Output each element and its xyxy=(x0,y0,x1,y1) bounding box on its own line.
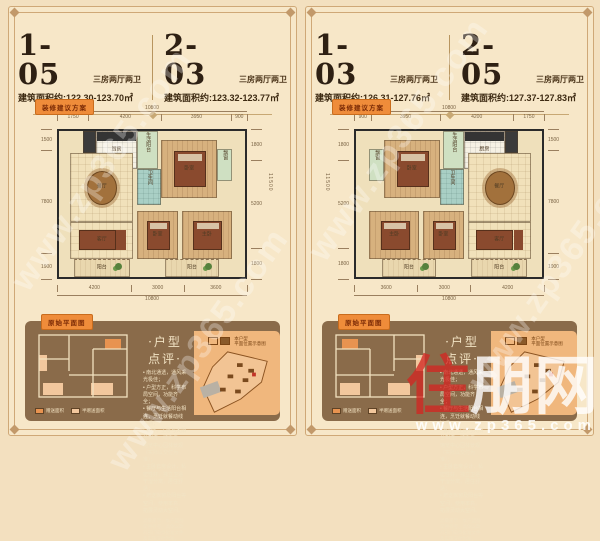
unit-info: 2-03 三房两厅两卫 建筑面积约:123.32-123.77㎡ xyxy=(155,31,296,104)
review-bullet: 赠送飘窗及阳台等空间，使用率高，拓展灵动大空间。 xyxy=(440,493,484,515)
room-label: 阳台 xyxy=(383,265,435,271)
room: 客厅 xyxy=(468,222,531,260)
legend-item: 赠送面积 xyxy=(35,408,64,414)
dimension-label: 7800 xyxy=(548,150,559,253)
original-plan-outline: 赠送面积半赠送面积 xyxy=(332,331,436,415)
site-legend: 本户型 平面位置示意图 xyxy=(495,336,573,347)
dimension-label: 3950 xyxy=(161,114,230,121)
legend-swatch xyxy=(35,408,44,414)
review-bullets: 南北通透，通风采光极佳；户型方正，科学布局空间，功能齐全；餐厅与生活阳台相连，烹… xyxy=(440,370,484,515)
floor-plan: 10800 900395042001750 厨房生活阳台卧室飘窗餐厅卫生间客厅卧… xyxy=(318,103,581,321)
room-label: 客厅 xyxy=(469,238,530,244)
dimension-column: 150078001900 xyxy=(548,129,559,280)
site-legend-text: 本户型 平面位置示意图 xyxy=(531,336,563,347)
dimension-total: 10800 xyxy=(354,295,544,302)
room: 卧室 xyxy=(384,140,440,198)
room-label: 生活阳台 xyxy=(451,132,457,168)
dimension-label: 4200 xyxy=(470,285,544,292)
renovation-plan-tag: 装修建议方案 xyxy=(332,99,391,115)
room-label: 餐厅 xyxy=(71,184,132,190)
room: 主卧 xyxy=(182,211,232,259)
room-label: 卧室 xyxy=(162,166,216,172)
corner-ornament-icon xyxy=(10,8,20,18)
review-title: ·户型点评· xyxy=(143,333,187,367)
unit-number: 1-03 xyxy=(315,31,386,89)
dimension-column: 180052001800 xyxy=(251,129,262,280)
unit-type: 三房两厅两卫 xyxy=(536,74,584,89)
dimension-label: 3000 xyxy=(417,285,470,292)
review-bullet: 主卧套房设计，私密性好，独立卫浴干湿分离，居住舒适； xyxy=(143,464,187,493)
room: 主卧 xyxy=(369,211,419,259)
unit-info: 1-05 三房两厅两卫 建筑面积约:122.30-123.70㎡ xyxy=(9,31,150,104)
room-label: 卫生间 xyxy=(146,170,152,205)
dimension-total: 10800 xyxy=(57,295,247,302)
room: 餐厅 xyxy=(70,153,133,222)
unit-info: 2-05 三房两厅两卫 建筑面积约:127.37-127.83㎡ xyxy=(452,31,593,104)
dimension-label: 900 xyxy=(231,114,248,121)
unit-number: 2-05 xyxy=(461,31,532,89)
room-label: 阳台 xyxy=(75,265,129,271)
outline-plan-drawing xyxy=(35,331,131,405)
corner-ornament-icon xyxy=(583,425,593,435)
legend-item: 半赠送面积 xyxy=(368,408,402,414)
room-label: 厨房 xyxy=(97,147,136,153)
dimension-label: 4200 xyxy=(440,114,513,121)
corner-ornament-icon xyxy=(307,425,317,435)
dimension-total: 11500 xyxy=(267,173,273,192)
room: 客厅 xyxy=(70,222,133,260)
unit-number: 2-03 xyxy=(164,31,235,89)
room: 阳台 xyxy=(74,259,130,277)
plan-legend: 赠送面积半赠送面积 xyxy=(332,408,436,414)
site-legend: 本户型 平面位置示意图 xyxy=(198,336,276,347)
dimension-row: 360030004200 xyxy=(354,285,545,292)
dimension-label: 4200 xyxy=(57,285,131,292)
review-bullet: 餐厅与生活阳台相连，烹饪就餐动线流畅； xyxy=(143,406,187,428)
site-plan: 本户型 平面位置示意图 xyxy=(491,331,577,415)
review-bullet: 户型方正，科学布局空间，功能齐全； xyxy=(440,385,484,407)
room-label: 飘窗 xyxy=(374,150,380,180)
dwelling-plan: 厨房生活阳台卧室飘窗餐厅卫生间客厅卧室主卧阳台阳台 xyxy=(57,129,247,279)
dimension-label: 1800 xyxy=(251,129,262,160)
site-map-drawing xyxy=(199,350,275,416)
dimension-label: 1900 xyxy=(41,253,52,279)
current-building-marker xyxy=(549,372,553,376)
room-label: 阳台 xyxy=(472,265,526,271)
review-bullet: 餐厅与生活阳台相连，烹饪就餐动线流畅； xyxy=(440,406,484,428)
room: 卫生间 xyxy=(137,169,161,206)
unit-header: 1-03 三房两厅两卫 建筑面积约:126.31-127.76㎡ 2-05 三房… xyxy=(306,31,593,104)
corner-ornament-icon xyxy=(286,8,296,18)
current-building-marker xyxy=(252,372,256,376)
dimension-label: 1800 xyxy=(251,248,262,279)
legend-swatch xyxy=(71,408,80,414)
review-bullet: 南北通透，通风采光极佳； xyxy=(143,370,187,385)
dimension-label: 1750 xyxy=(513,114,544,121)
legend-label: 半赠送面积 xyxy=(379,408,402,414)
room: 阳台 xyxy=(382,259,436,277)
legend-item: 赠送面积 xyxy=(332,408,361,414)
dimension-label: 4200 xyxy=(88,114,161,121)
review-box: 原始平面图 赠送面积半赠送面积 ·户型点评· 南北通透，通风采光极 xyxy=(25,321,280,421)
renovation-plan-tag: 装修建议方案 xyxy=(35,99,94,115)
room: 生活阳台 xyxy=(137,131,157,169)
flyer-panel-right: 1-03 三房两厅两卫 建筑面积约:126.31-127.76㎡ 2-05 三房… xyxy=(305,6,594,436)
disclaimer: 温馨提示：本户型图仅供参考，具体以政府部门最终批准文件及实际交付为准。 xyxy=(143,518,187,541)
site-legend-text: 本户型 平面位置示意图 xyxy=(234,336,266,347)
room-label: 餐厅 xyxy=(469,184,530,190)
dimension-label: 5200 xyxy=(251,160,262,248)
dimension-column: 150078001900 xyxy=(41,129,52,280)
legend-label: 半赠送面积 xyxy=(82,408,105,414)
legend-label: 赠送面积 xyxy=(46,408,64,414)
room: 阳台 xyxy=(165,259,219,277)
room-label: 卧室 xyxy=(424,233,463,239)
review-bullets: 南北通透，通风采光极佳；户型方正，科学布局空间，功能齐全；餐厅与生活阳台相连，烹… xyxy=(143,370,187,515)
room: 卧室 xyxy=(423,211,464,259)
room: 阳台 xyxy=(471,259,527,277)
dimension-label: 1800 xyxy=(338,129,349,160)
plan-legend: 赠送面积半赠送面积 xyxy=(35,408,139,414)
corner-ornament-icon xyxy=(10,425,20,435)
room-label: 生活阳台 xyxy=(145,132,151,168)
legend-swatch xyxy=(332,408,341,414)
disclaimer: 温馨提示：本户型图仅供参考，具体以政府部门最终批准文件及实际交付为准。 xyxy=(440,518,484,541)
review-column: ·户型点评· 南北通透，通风采光极佳；户型方正，科学布局空间，功能齐全；餐厅与生… xyxy=(436,331,491,415)
room-label: 飘窗 xyxy=(222,150,228,180)
header-divider xyxy=(449,35,450,100)
dimension-label: 5200 xyxy=(338,160,349,248)
dimension-label: 7800 xyxy=(41,150,52,253)
site-plan: 本户型 平面位置示意图 xyxy=(194,331,280,415)
dimension-label: 1750 xyxy=(57,114,88,121)
dwelling-plan: 厨房生活阳台卧室飘窗餐厅卫生间客厅卧室主卧阳台阳台 xyxy=(354,129,544,279)
legend-swatch xyxy=(368,408,377,414)
room-label: 主卧 xyxy=(183,233,231,239)
flyer-panel-left: 1-05 三房两厅两卫 建筑面积约:122.30-123.70㎡ 2-03 三房… xyxy=(8,6,297,436)
dimension-label: 1900 xyxy=(548,253,559,279)
review-bullet: 客厅、主卧与大阳台相连一线采光，饱览中心园林景观（实际以交付为准）； xyxy=(143,428,187,464)
room: 生活阳台 xyxy=(443,131,463,169)
room: 飘窗 xyxy=(217,149,232,181)
corner-ornament-icon xyxy=(286,425,296,435)
review-bullet: 客厅、主卧与大阳台相连一线采光，饱览中心园林景观（实际以交付为准）； xyxy=(440,428,484,464)
unit-info: 1-03 三房两厅两卫 建筑面积约:126.31-127.76㎡ xyxy=(306,31,447,104)
review-bullet: 南北通透，通风采光极佳； xyxy=(440,370,484,385)
legend-label: 赠送面积 xyxy=(343,408,361,414)
room-label: 卫生间 xyxy=(449,170,455,205)
dimension-total: 11500 xyxy=(324,173,330,192)
counter-icon xyxy=(465,132,504,141)
room-label: 厨房 xyxy=(465,147,504,153)
original-plan-outline: 赠送面积半赠送面积 xyxy=(35,331,139,415)
building-icon xyxy=(505,337,527,345)
header-divider xyxy=(152,35,153,100)
room xyxy=(505,131,518,153)
room: 卧室 xyxy=(137,211,178,259)
building-icon xyxy=(208,337,230,345)
review-column: ·户型点评· 南北通透，通风采光极佳；户型方正，科学布局空间，功能齐全；餐厅与生… xyxy=(139,331,194,415)
room-label: 客厅 xyxy=(71,238,132,244)
unit-number: 1-05 xyxy=(18,31,89,89)
dimension-row: 420030003600 xyxy=(57,285,248,292)
unit-type: 三房两厅两卫 xyxy=(390,74,438,89)
dimension-label: 3600 xyxy=(354,285,417,292)
dimension-label: 3000 xyxy=(131,285,184,292)
dimension-label: 3600 xyxy=(184,285,247,292)
corner-ornament-icon xyxy=(307,8,317,18)
dimension-label: 1500 xyxy=(548,129,559,150)
legend-item: 半赠送面积 xyxy=(71,408,105,414)
unit-type: 三房两厅两卫 xyxy=(93,74,141,89)
dimension-row: 900395042001750 xyxy=(354,114,545,121)
unit-type: 三房两厅两卫 xyxy=(239,74,287,89)
room: 飘窗 xyxy=(369,149,384,181)
dimension-row: 175042003950900 xyxy=(57,114,248,121)
original-plan-tag: 原始平面图 xyxy=(41,314,93,330)
dimension-label: 1500 xyxy=(41,129,52,150)
room: 卫生间 xyxy=(440,169,464,206)
dimension-label: 900 xyxy=(354,114,371,121)
site-map-drawing xyxy=(496,350,572,416)
room: 餐厅 xyxy=(468,153,531,222)
review-bullet: 主卧套房设计，私密性好，独立卫浴干湿分离，居住舒适； xyxy=(440,464,484,493)
room-label: 卧室 xyxy=(138,233,177,239)
floor-plan: 10800 175042003950900 厨房生活阳台卧室飘窗餐厅卫生间客厅卧… xyxy=(21,103,284,321)
dimension-label: 3950 xyxy=(371,114,440,121)
review-bullet: 户型方正，科学布局空间，功能齐全； xyxy=(143,385,187,407)
original-plan-tag: 原始平面图 xyxy=(338,314,390,330)
room-label: 阳台 xyxy=(166,265,218,271)
room: 卧室 xyxy=(161,140,217,198)
review-title: ·户型点评· xyxy=(440,333,484,367)
outline-plan-drawing xyxy=(332,331,428,405)
review-box: 原始平面图 赠送面积半赠送面积 ·户型点评· 南北通透，通风采光极 xyxy=(322,321,577,421)
room-label: 卧室 xyxy=(385,166,439,172)
dimension-label: 1800 xyxy=(338,248,349,279)
review-bullet: 赠送飘窗及阳台等空间，使用率高，拓展灵动大空间。 xyxy=(143,493,187,515)
unit-header: 1-05 三房两厅两卫 建筑面积约:122.30-123.70㎡ 2-03 三房… xyxy=(9,31,296,104)
corner-ornament-icon xyxy=(583,8,593,18)
counter-icon xyxy=(97,132,136,141)
room xyxy=(83,131,96,153)
room-label: 主卧 xyxy=(370,233,418,239)
dimension-column: 180052001800 xyxy=(338,129,349,280)
